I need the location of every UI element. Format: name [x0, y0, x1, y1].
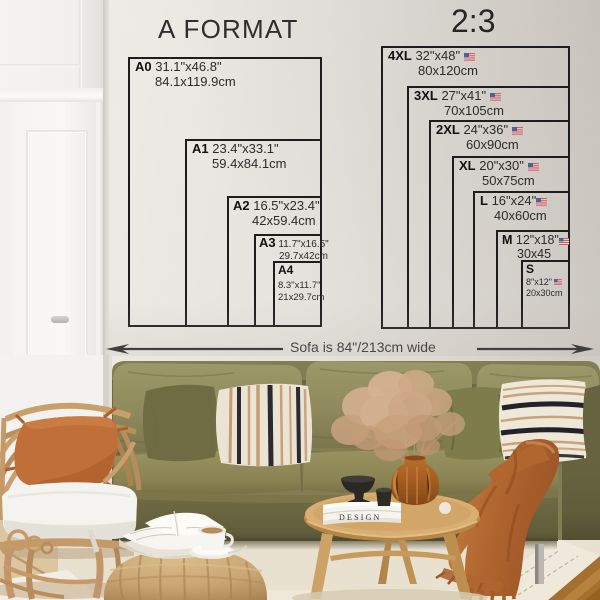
svg-text:DESIGN: DESIGN	[339, 513, 382, 522]
